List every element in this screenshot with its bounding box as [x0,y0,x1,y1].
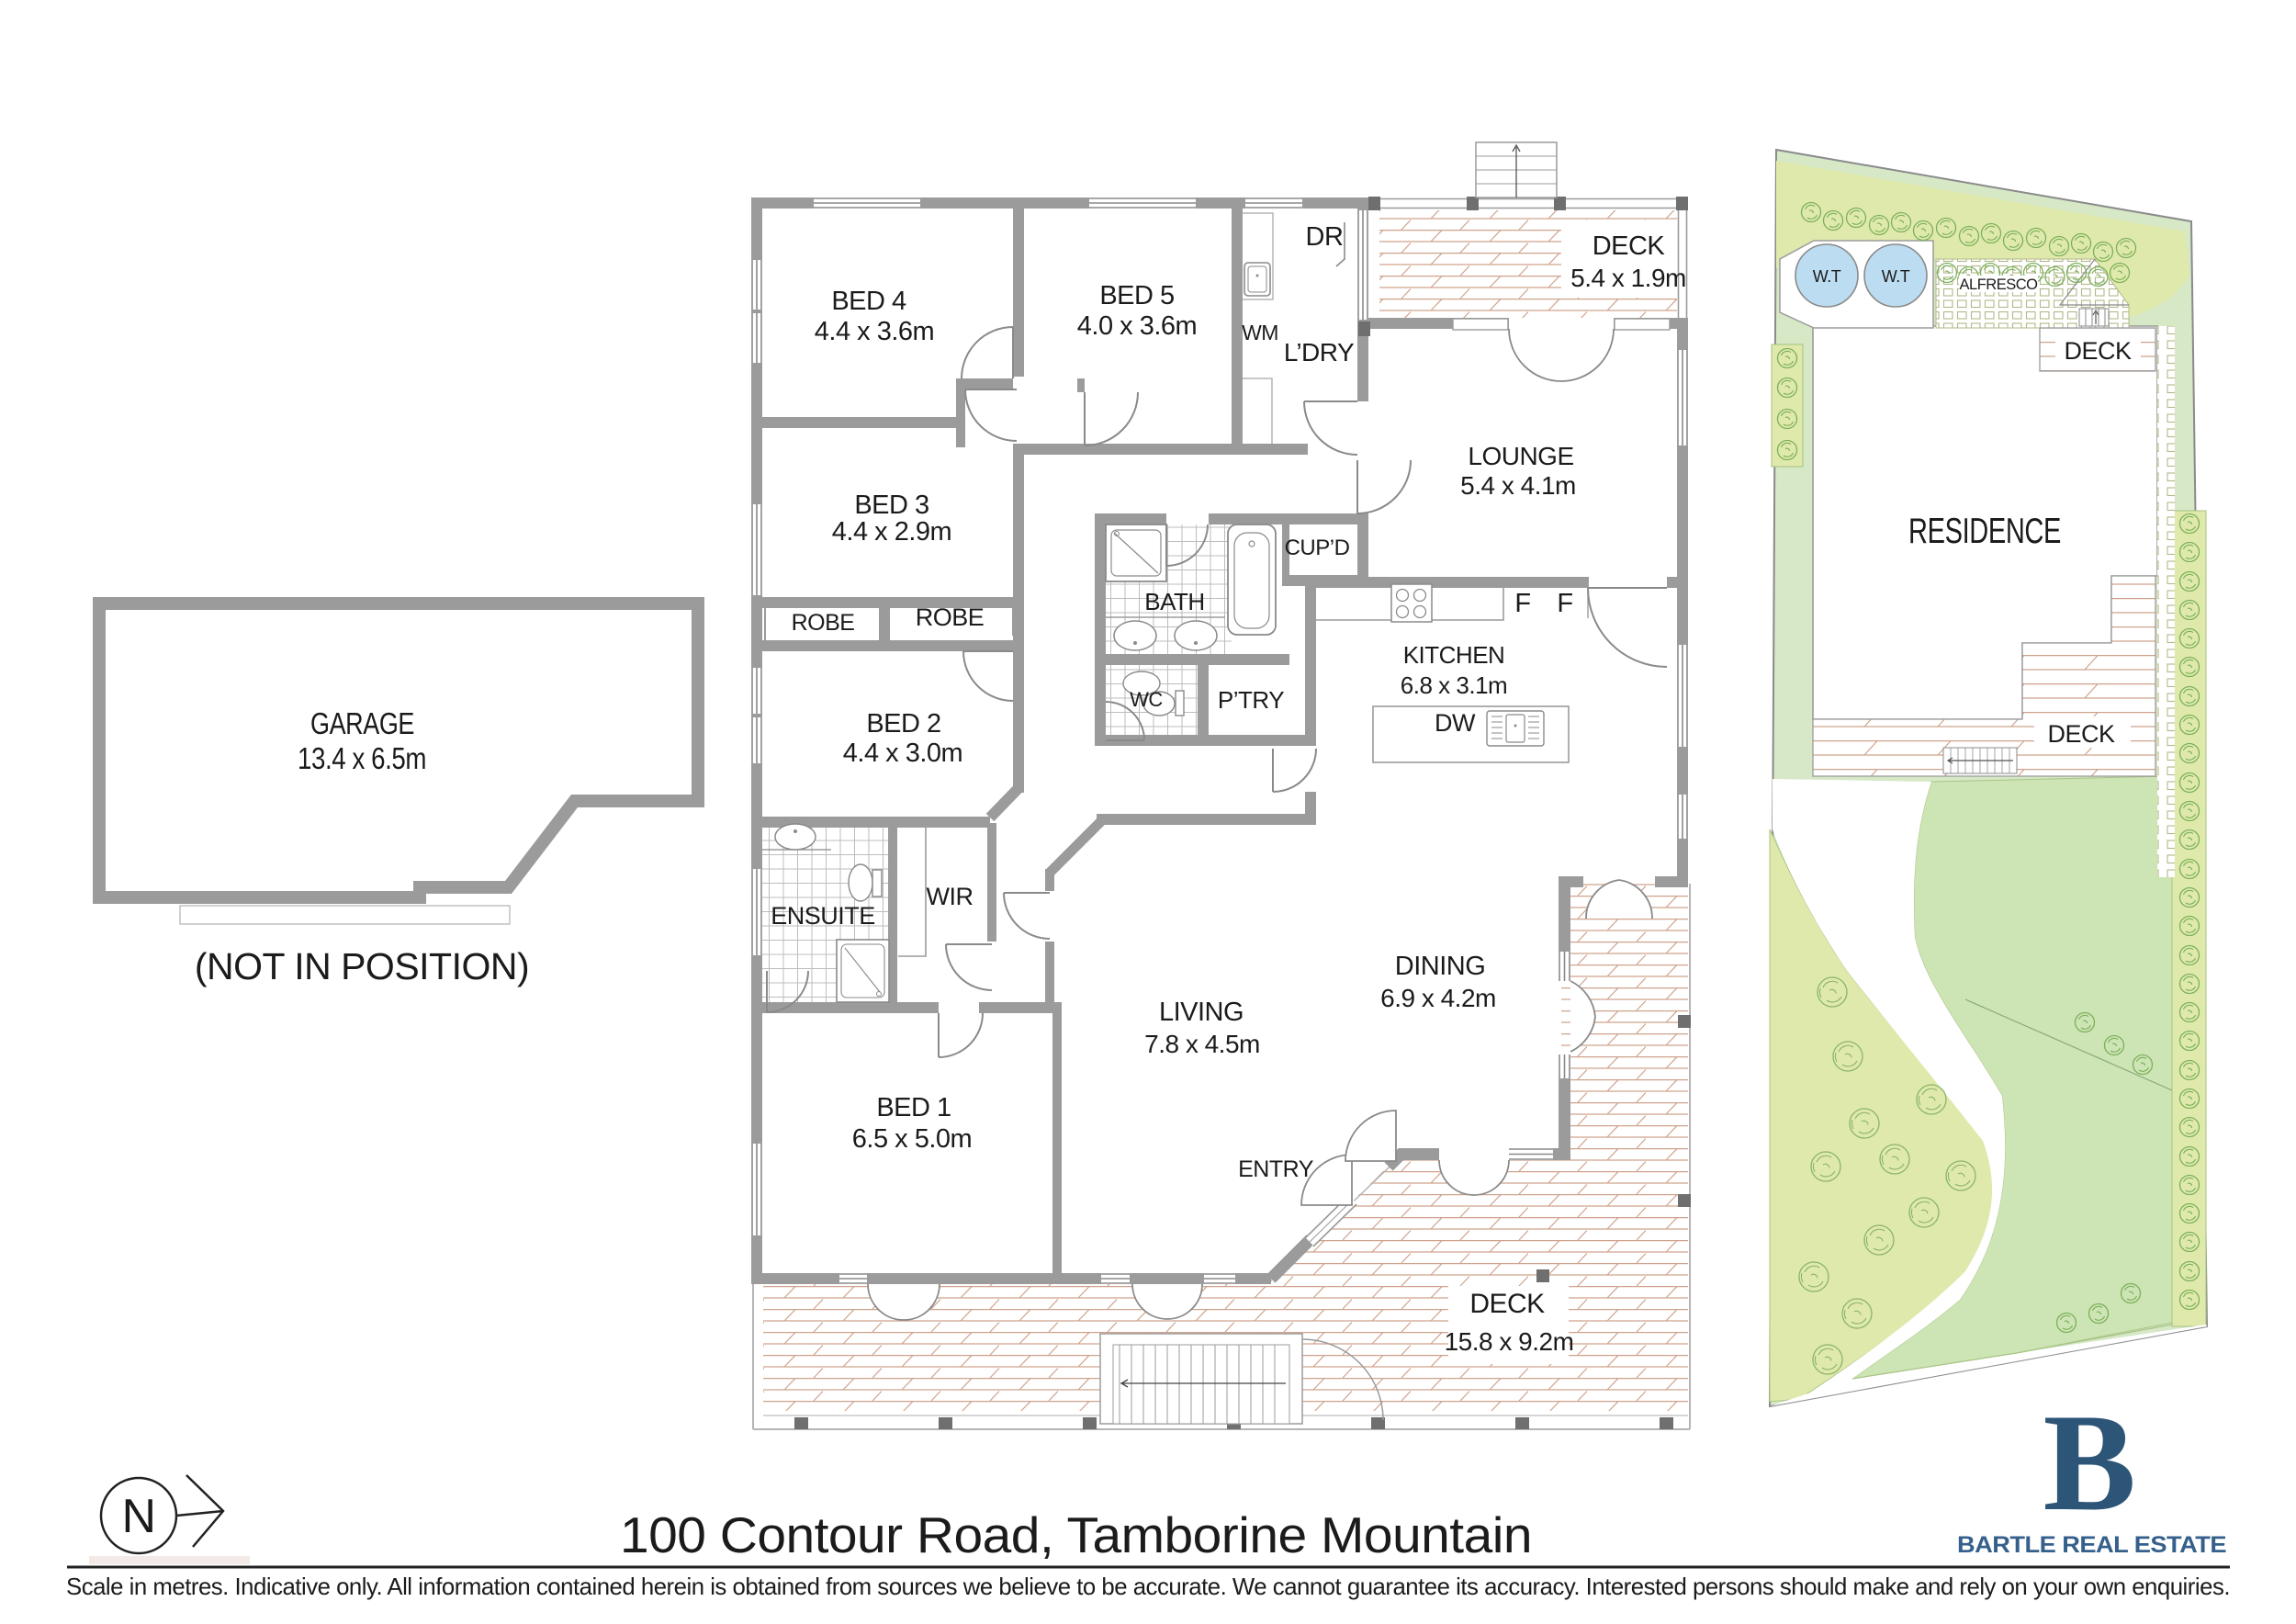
svg-text:BED 3: BED 3 [854,491,929,520]
svg-text:LIVING: LIVING [1159,998,1244,1027]
svg-text:GARAGE: GARAGE [310,706,414,740]
svg-text:DECK: DECK [2047,720,2115,748]
svg-text:15.8 x 9.2m: 15.8 x 9.2m [1445,1327,1574,1356]
svg-text:RESIDENCE: RESIDENCE [1908,512,2061,551]
svg-text:ROBE: ROBE [792,610,855,636]
svg-text:DW: DW [1435,709,1476,737]
svg-text:ALFRESCO: ALFRESCO [1960,276,2039,293]
svg-text:100 Contour Road, Tamborine Mo: 100 Contour Road, Tamborine Mountain [620,1506,1532,1563]
svg-text:6.8 x 3.1m: 6.8 x 3.1m [1401,671,1507,699]
svg-text:KITCHEN: KITCHEN [1403,641,1505,669]
svg-text:LOUNGE: LOUNGE [1468,442,1573,470]
svg-text:DINING: DINING [1395,952,1486,981]
svg-text:7.8 x 4.5m: 7.8 x 4.5m [1144,1030,1260,1058]
svg-text:B: B [2043,1385,2136,1539]
svg-text:WM: WM [1242,321,1278,344]
svg-text:BATH: BATH [1144,588,1204,615]
svg-text:WIR: WIR [927,883,974,910]
svg-text:ENSUITE: ENSUITE [771,902,875,930]
svg-text:L’DRY: L’DRY [1284,338,1355,367]
svg-text:Scale in metres. Indicative on: Scale in metres. Indicative only. All in… [66,1573,2230,1600]
svg-text:DR: DR [1306,222,1344,252]
svg-text:N: N [121,1490,155,1543]
svg-text:CUP’D: CUP’D [1285,536,1350,560]
svg-text:ENTRY: ENTRY [1238,1156,1314,1182]
svg-text:BED 5: BED 5 [1099,281,1174,310]
svg-text:BED 2: BED 2 [866,709,940,739]
svg-text:F: F [1514,589,1530,618]
svg-text:F: F [1557,589,1572,618]
svg-text:ROBE: ROBE [916,603,985,631]
svg-text:4.0 x 3.6m: 4.0 x 3.6m [1077,311,1197,341]
svg-text:(NOT IN POSITION): (NOT IN POSITION) [195,945,529,987]
svg-text:W.T: W.T [1882,267,1910,286]
svg-text:5.4 x 1.9m: 5.4 x 1.9m [1570,264,1686,292]
svg-text:5.4 x 4.1m: 5.4 x 4.1m [1460,471,1576,500]
svg-text:4.4 x 3.0m: 4.4 x 3.0m [843,739,962,768]
svg-text:BED 4: BED 4 [831,287,906,316]
svg-text:DECK: DECK [1469,1289,1545,1319]
svg-text:13.4 x 6.5m: 13.4 x 6.5m [298,741,426,775]
svg-text:6.9 x 4.2m: 6.9 x 4.2m [1380,984,1496,1012]
svg-text:BARTLE REAL ESTATE: BARTLE REAL ESTATE [1957,1532,2226,1558]
svg-text:W.T: W.T [1813,267,1841,286]
svg-text:DECK: DECK [2064,337,2132,365]
svg-text:4.4 x 2.9m: 4.4 x 2.9m [832,517,951,547]
svg-text:DECK: DECK [1593,231,1666,261]
svg-text:P’TRY: P’TRY [1218,686,1284,714]
svg-text:BED 1: BED 1 [876,1093,951,1122]
svg-text:WC: WC [1130,688,1163,711]
svg-text:6.5 x 5.0m: 6.5 x 5.0m [852,1124,972,1154]
svg-text:4.4 x 3.6m: 4.4 x 3.6m [815,317,934,346]
